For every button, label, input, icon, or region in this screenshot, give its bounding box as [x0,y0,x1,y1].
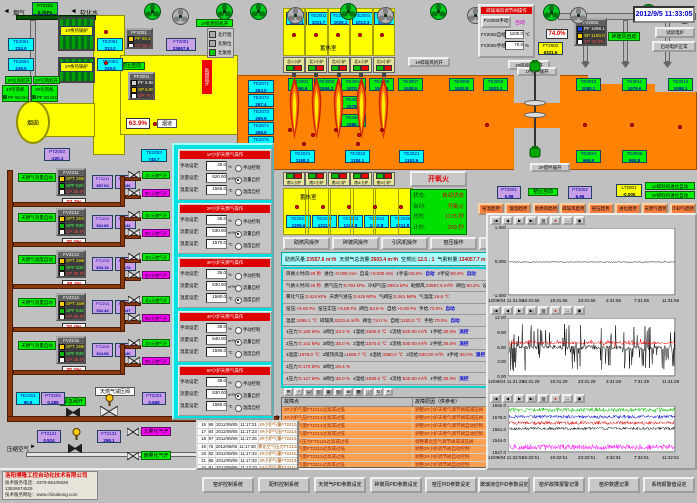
sensor-box-FT2215: FT2215524.58 [92,343,113,357]
gas-branch-pipe [13,327,123,332]
flue-gas-arrow-icon: ◄ [3,8,11,16]
sensor-box-TE3008: TE30081533.8 [449,78,474,91]
gas-auto-label-5: 天燃气流量自动 [18,341,56,350]
field-unit: % [228,326,232,331]
company-web: 技术服务网址：www.chinakong.com [5,492,95,498]
gas-north-open-5: 北5天燃气开 [142,339,170,347]
chart1-tool-3[interactable]: ▶ [514,216,525,225]
chart2-tool-1[interactable]: |◀ [490,306,501,315]
chart3-tool-1[interactable]: |◀ [490,394,501,403]
field-unit: ℃ [228,296,233,301]
compressed-air-label: 压缩空气 [7,445,31,453]
field-input[interactable]: 1560.0 [206,185,227,195]
toolbar-icon-9[interactable]: ◫ [364,388,373,396]
fv2002-manset-input[interactable]: 70.0 [505,41,524,50]
sensor-box-PT2001: PT20015.88 [497,186,521,199]
chart2-xtick: 15:31:29 [522,379,552,386]
sensor-box-FT2131: FT2131298.1 [97,430,121,443]
sensor-dot [153,122,157,126]
sensor-box-TE2063: TE2063319.0 [97,58,123,71]
gas-panel-title: 5#小炉天燃气操作 [180,367,270,375]
chart1-xtick: 23:31:56 [578,298,608,305]
gas-south-open-3: 南3天燃气开 [142,271,170,279]
gas-reducer-label: 天燃气减压阀 [95,387,135,396]
valve-icon [128,253,140,261]
chart3-xtick: 19:32:51 [550,455,580,462]
flue-valve-position: 63.9% [126,118,150,129]
stirrer2-on-button[interactable]: 2#搅拌器开 [530,163,570,172]
bottom-button-1[interactable]: 窑炉控制系统 [202,477,254,493]
summary-cell: 助燃风量:23557.6 m³/h [285,256,336,263]
sensor-dot [292,33,296,37]
oxy-fire-button[interactable]: 开氧火 [410,171,467,187]
flame-icon [354,77,369,139]
op-button-1[interactable]: 助燃风操作 [283,237,330,250]
gas-south-open-1: 南1天燃气开 [142,189,170,197]
toolbar-icon-10[interactable]: ⇅ [374,388,383,396]
log-row[interactable]: 21852012/09/0511:17:333#小炉气量FT2213过高或过低 [198,458,297,465]
chart1-tool-2[interactable]: ◀ [502,216,513,225]
fan-icon [430,3,447,20]
chart1-tool-8[interactable]: ▣ [574,216,585,225]
sensor-dot [336,33,340,37]
flue-label: 烟道 [157,119,177,128]
bottom-button-8[interactable]: 窑炉数据记录 [588,477,640,493]
north-port-box: 北5小炉 [373,57,395,73]
fv2002-auto-label: 自动 [515,19,525,26]
sensor-dot [380,128,384,132]
fan-icon [340,3,357,20]
field-label: 温度设定: [180,295,206,301]
toolbar-icon-6[interactable]: ▧ [334,388,343,396]
sensor-dot [380,33,384,37]
gas-north-open-2: 北2天燃气开 [142,211,170,219]
idf2-freq-box: 2#引风机PF 50.0Hz [31,85,58,102]
stirrer-blade [524,112,546,118]
op-button-2[interactable]: 碎玻风操作 [332,237,379,250]
chart2-tool-5[interactable]: ▧ [538,306,549,315]
compressed-air-arrow-icon: ► [30,444,38,452]
sensor-dot [314,33,318,37]
mode-radio-group: 手动控制流量自控温度自控 [235,324,272,360]
field-input[interactable]: 520.00 [206,173,227,183]
chart2-xtick: 19:31:29 [550,379,580,386]
motor-icon [570,7,587,24]
motor-icon [287,7,304,24]
legend-panel: 北行程北限位北氧枪 [207,28,234,58]
gas-branch-pipe [13,370,123,375]
fan-controller: PF2001PF 60.2%CP 60.1% [125,28,153,49]
scada-furnace-screen: ◄烟气◄软化水1#余热锅炉2#余热锅炉烟囱1#引风机开2#引风机开1#引风机PF… [0,0,697,503]
mode-radio-流量自控[interactable]: 流量自控 [235,174,272,186]
mode-radio-手动控制[interactable]: 手动控制 [235,162,272,174]
regen-north-label: 蓄热室 [320,44,360,53]
toolbar-icon-3[interactable]: ▤ [304,388,313,396]
gas-north-open-3: 北3天燃气开 [142,253,170,261]
toolbar-icon-5[interactable]: ▦ [324,388,333,396]
chart3-ytick: 1544.0 [484,438,506,444]
mode-radio-流量自控[interactable]: 流量自控 [235,390,272,402]
toolbar-icon-2[interactable]: ? [294,388,303,396]
fan-controller-row: CP 60.1% [127,43,151,50]
chart1-plot [508,228,676,296]
sensor-box-PT2202: PT22020.7kPa [32,2,58,15]
sensor-box-FT2214: FT2214532.44 [92,300,113,314]
fan-icon [216,3,233,20]
mode-radio-手动控制[interactable]: 手动控制 [235,270,272,282]
chart3-tool-8[interactable]: ▣ [574,394,585,403]
field-unit: % [228,380,232,385]
field-label: 流量设定: [180,337,206,343]
idf1-freq-box: 1#引风机PF 50.0Hz [2,85,29,102]
toolbar-icon-1[interactable]: ≣ [284,388,293,396]
chart2-tool-3[interactable]: ▶ [514,306,525,315]
field-label: 流量设定: [180,391,206,397]
chart2-ytick: 9.00 [484,330,506,336]
chart1-tool-5[interactable]: ▧ [538,216,549,225]
stirrer-shaft [534,72,536,146]
legend-item: 北限位 [209,39,232,48]
sensor-dot [295,205,299,209]
sensor-box-TE3010: TE30101080.1 [576,78,601,91]
op-button-4[interactable]: 窑压操作 [430,237,477,250]
chart3-ytick: 1592.0 [484,403,506,409]
sensor-box-TE3025: TE3025965.8 [622,150,647,163]
fv2002-manset-unit: % [525,43,529,48]
op-button-3[interactable]: 引风机操作 [381,237,428,250]
north-port-box: 北2小炉 [305,57,327,73]
crusher-fan-valve-dialog: 碎玻璃风调节阀操作 FV2002手动 自动 FV2002自给 1100.0 ℃ … [478,4,535,58]
gas-controller-FV2213: FV2213SPT 1580.0SPF 530.00CP 35.0% [56,250,86,278]
company-phone: 技术服务电话：0379-65105829 13526974529 [5,480,95,492]
heater-ok-button[interactable]: 启动电炉正常 [652,41,696,52]
mode-radio-流量自控[interactable]: 流量自控 [235,228,272,240]
valve-icon [100,406,118,417]
sensor-box-TE3024: TE3024965.9 [576,150,601,163]
gas-panel-title: 1#小炉天燃气操作 [180,151,270,159]
mode-radio-group: 手动控制流量自控温度自控 [235,162,272,198]
crusher-fan-auto-label: 碎玻风自动 [608,32,640,41]
field-unit: % [228,218,232,223]
chart2-xtick: 11:31:29 [662,379,692,386]
valve-icon [128,296,140,304]
field-label: 流量设定: [180,175,206,181]
sensor-box-TE3023: TE30231184.1 [345,150,370,163]
field-unit: % [228,272,232,277]
gas-panel-title: 3#小炉天燃气操作 [180,259,270,267]
fv2002-manset-label: FV2002手给 [481,43,505,49]
chart3-tool-2[interactable]: ◀ [502,394,513,403]
chart3-tool-7[interactable]: ↔ [562,394,573,403]
toolbar-icon-11[interactable]: × [384,388,393,396]
sensor-dot [311,133,315,137]
toolbar-icon-8[interactable]: ▩ [354,388,363,396]
chart2-tool-7[interactable]: ↔ [562,306,573,315]
chart1-ytick: 0.000 [484,259,506,265]
datetime-display: 2012/9/5 11:33:05 [633,6,695,23]
chart2-tool-8[interactable]: ▣ [574,306,585,315]
field-label: 手动设定: [180,217,206,223]
sensor-box-TE2073: TE2073269.6 [248,108,274,121]
sensor-dot [373,205,377,209]
comb-fan1-on-label: 1#助燃风机开 [196,19,233,27]
north-port-box: 北3小炉 [328,57,350,73]
sensor-box-PT2003: PT2003-220.1 [44,148,70,161]
status-label: 状态: [413,191,426,202]
valve-icon [127,428,139,436]
chart1-xtick: 11:31:56 [662,298,692,305]
boiler2-label: 2#余热锅炉 [60,62,93,72]
field-input[interactable]: 30.0 [206,323,227,333]
gas-controller-FV2212: FV2212SPT 1570.0SPF 530.00CP 35.0% [56,208,86,236]
mode-radio-手动控制[interactable]: 手动控制 [235,324,272,336]
nozzle-icon [663,62,672,68]
riser-pipe [623,20,628,62]
sensor-dot [583,123,587,127]
nozzle-icon [621,62,630,68]
chart1-tool-4[interactable]: ▶| [526,216,537,225]
field-input[interactable]: 530.00 [206,227,227,237]
field-input[interactable]: 35.0 [206,215,227,225]
field-input[interactable]: 30.0 [206,161,227,171]
sensor-box-TE3021: TE30211153.9 [399,150,424,163]
chart2-ytick: 6.00 [484,345,506,351]
fan-icon [250,3,267,20]
chart3-xtick: 3:32:51 [606,455,636,462]
sensor-dot [321,205,325,209]
chart2-tool-6[interactable]: ● [550,306,561,315]
gas-panel-3: 3#小炉天燃气操作 手动设定: 35.0 % 流量设定: 530.00 m³/h… [178,257,272,308]
field-label: 手动设定: [180,271,206,277]
motor-icon [377,7,394,24]
idf2-on-label: 2#引风机开 [33,76,60,84]
sensor-dot [104,30,108,34]
regen-south-label: 蓄热室 [300,193,340,202]
field-input[interactable]: 1580.0 [206,401,227,411]
summary-cell: 天燃气总流量:2603.4 m³/h [339,256,398,263]
status-value: 自动状态 [442,191,464,202]
motor-icon [172,8,189,25]
sensor-box-PT2002: PT20026.96 [568,186,592,199]
bottom-button-3[interactable]: 天燃气PID参数设定 [314,477,366,493]
stirrer-motor-icon [528,60,542,72]
field-input[interactable]: 35.0 [206,269,227,279]
log-row[interactable]: 16982012/09/0511:17:212#小炉气量FT2212过高或过低 [198,422,297,429]
mode-radio-group: 手动控制流量自控温度自控 [235,270,272,306]
mode-radio-温度自控[interactable]: 温度自控 [235,294,272,306]
valve-icon [128,357,140,365]
field-label: 温度设定: [180,241,206,247]
log-row[interactable]: 19752012/09/0511:17:30雾化空气压力FT2122过高或过低 [198,444,297,451]
gas-operation-popup: 1#小炉天燃气操作 手动设定: 30.0 % 流量设定: 520.00 m³/h… [172,143,274,420]
mode-radio-手动控制[interactable]: 手动控制 [235,378,272,390]
idf1-on-label: 1#引风机开 [5,76,32,84]
legend-item: 北行程 [209,30,232,39]
dialog-title: 碎玻璃风调节阀操作 [481,7,532,14]
sensor-dot [678,125,682,129]
bottom-button-4[interactable]: 碎玻风PID参数设定 [370,477,422,493]
chart3-ytick: 1578.0 [484,415,506,421]
chart1-xtick: 15:31:56 [522,298,552,305]
sensor-box-TE3007: TE30071538.5 [398,78,423,91]
field-input[interactable]: 540.00 [206,335,227,345]
glass-fan1-on-button[interactable]: 1#碎玻风机开 [408,57,450,67]
south-port-box: 南3小炉 [328,172,350,186]
gas-auto-label-3: 天燃气温度自动 [18,255,56,264]
chart3-xtick: 23:32:51 [578,455,608,462]
chart2-xtick: 3:31:29 [606,379,636,386]
gas-branch-pipe [13,284,123,289]
log-row[interactable]: 20822012/09/0511:17:332#小炉气量FT2212过高或过低 [198,451,297,458]
kiln-pressure-controller: PF2001PF 5.88SP 6.00OP 78.0% [128,72,155,100]
mode-radio-温度自控[interactable]: 温度自控 [235,348,272,360]
field-unit: % [228,164,232,169]
soft-water-label: 软化水 [80,8,102,16]
chart1-tool-1[interactable]: |◀ [490,216,501,225]
valve-actuator-icon [105,394,114,406]
field-label: 手动设定: [180,325,206,331]
field-input[interactable]: 1590.0 [206,347,227,357]
toolbar-icon-4[interactable]: ▥ [314,388,323,396]
gas-auto-label-1: 天燃气流量自动 [18,173,56,182]
field-input[interactable]: 1570.0 [206,239,227,249]
test-furnace-button[interactable]: 试验电炉 [655,27,695,38]
chart3-xtick: 11:32:51 [662,455,692,462]
chart1-tool-7[interactable]: ↔ [562,216,573,225]
mode-radio-温度自控[interactable]: 温度自控 [235,240,272,252]
bottom-button-7[interactable]: 窑炉故障报警记录 [533,477,585,493]
valve-icon [128,211,140,219]
chart1-xtick: 19:31:56 [550,298,580,305]
regen-cell-south [373,188,399,235]
sensor-dot [288,128,292,132]
bottom-button-2[interactable]: 配料控制系统 [258,477,310,493]
log-row[interactable]: 22812012/09/0511:17:331#小炉气量FT2211过高或过低 [198,465,297,470]
summary-cell: 气累积量:134057.7 m³ [437,256,487,263]
field-unit: ℃ [228,350,233,355]
sensor-dot [399,205,403,209]
auto-label: 自动: [413,202,426,213]
field-label: 手动设定: [180,163,206,169]
gas-controller-FV2214: FV2214SPT 1590.0SPF 540.00CP 30.0% [56,293,86,321]
chart1-tool-6[interactable]: ● [550,216,561,225]
sensor-dot [334,128,338,132]
nozzle-icon [581,62,590,68]
valve-icon [66,408,80,417]
field-input[interactable]: 530.00 [206,281,227,291]
chart3-xtick: 7:32:51 [634,455,664,462]
chart2-ytick: 12.00 [484,315,506,321]
chart1-xtick: 7:31:56 [634,298,664,305]
count-time-value: 269 秒 [448,223,464,234]
chart3-tool-4[interactable]: ▶| [526,394,537,403]
sensor-box-FT2201: FT22010.659 [142,392,166,405]
field-label: 手动设定: [180,379,206,385]
chart1-xtick: 3:31:56 [606,298,636,305]
field-label: 温度设定: [180,187,206,193]
fv2002-autoset-input[interactable]: 1100.0 [505,30,524,39]
chart3-tool-3[interactable]: ▶ [514,394,525,403]
gas-branch-pipe [13,242,123,247]
chart3-tool-6[interactable]: ● [550,394,561,403]
chart2-tool-4[interactable]: ▶| [526,306,537,315]
field-label: 流量设定: [180,229,206,235]
company-name: 洛阳博隆工控自动化技术有限公司 [5,473,95,480]
sensor-box-LT2001: LT2001-0.005 [616,184,642,197]
log-row[interactable]: 17842012/09/0511:17:234#小炉气压FT2214过高或过低 [198,429,297,436]
sensor-box-TE3009: TE30091523.1 [483,78,508,91]
sensor-dot [356,142,360,146]
mode-radio-手动控制[interactable]: 手动控制 [235,216,272,228]
gas-panel-5: 5#小炉天燃气操作 手动设定: 35.0 % 流量设定: 530.00 m³/h… [178,365,272,416]
chart2-tool-2[interactable]: ◀ [502,306,513,315]
field-input[interactable]: 530.00 [206,389,227,399]
chart1-ytick: 1.000 [484,225,506,231]
chart2-ytick: 3.00 [484,359,506,365]
auto-status-panel: 状态:自动状态 自动:开氧火 总时:1175 秒 计时:269 秒 [410,189,467,235]
bottom-button-6[interactable]: 玻璃液位PID参数设定 [478,477,530,493]
north-port-box: 北1小炉 [283,57,305,73]
atomizing-north-label: 北雾化气开 [141,427,171,436]
gas-panel-title: 4#小炉天燃气操作 [180,313,270,321]
mode-radio-流量自控[interactable]: 流量自控 [235,336,272,348]
toolbar-icon-7[interactable]: ⊞ [344,388,353,396]
log-row[interactable]: 18972012/09/0511:17:263#小炉气量FT2213过高或过低 [198,436,297,443]
fan-icon [543,4,560,21]
sensor-box-FT2213: FT2213603.19 [92,257,113,271]
chart3-tool-5[interactable]: ▧ [538,394,549,403]
comb-air-on-bar: 助燃风开 [202,60,212,94]
gas-south-open-4: 南4天燃气开 [142,314,170,322]
summary-cell: 空燃比:12.5 : 1 [401,256,434,263]
south-port-box: 南4小炉 [350,172,372,186]
sensor-box-TE2201: TE220190.6 [16,392,40,405]
sensor-box-TE3011: TE30111079.6 [622,78,647,91]
total-time-value: 1175 秒 [445,212,464,223]
boiler1-label: 1#余热锅炉 [60,26,93,36]
crusher-fan-controller-row: CP 70.0% [576,39,605,46]
atomizing-south-label: 南雾化气开 [141,451,171,460]
chart2-xtick: 7:31:29 [634,379,664,386]
field-input[interactable]: 35.0 [206,377,227,387]
valve-icon [68,444,82,453]
sensor-box-PT2202: PT22020.285 [41,392,65,405]
bottom-button-5[interactable]: 窑压PID参数设定 [425,477,477,493]
mode-radio-温度自控[interactable]: 温度自控 [235,186,272,198]
valve-icon [128,339,140,347]
south-port-box: 南2小炉 [305,172,327,186]
sensor-box-TE2081: TE2081313.0 [97,38,123,51]
gas-auto-label-2: 天燃气流量自动 [18,213,56,222]
sensor-box-FT2001: FT200123657.6 [166,38,196,51]
gas-north-open-1: 北1天燃气开 [142,171,170,179]
kiln-pressure-controller-row: OP 78.0% [130,93,153,100]
north-port-box: 北4小炉 [350,57,372,73]
mode-radio-温度自控[interactable]: 温度自控 [235,402,272,414]
field-input[interactable]: 1580.0 [206,293,227,303]
fv2002-autoset-unit: ℃ [525,32,530,38]
mode-radio-group: 手动控制流量自控温度自控 [235,378,272,414]
chart2-xtick: 23:31:29 [578,379,608,386]
bottom-button-9[interactable]: 系统报警值设定 [643,477,695,493]
valve-icon [128,171,140,179]
field-label: 流量设定: [180,283,206,289]
fv2002-manual-button[interactable]: FV2002手动 [481,16,511,28]
sensor-box-TE2064: TE2064239.0 [8,58,34,71]
valve-icon [128,189,140,197]
mode-radio-流量自控[interactable]: 流量自控 [235,282,272,294]
gas-main-vertical [7,170,13,422]
